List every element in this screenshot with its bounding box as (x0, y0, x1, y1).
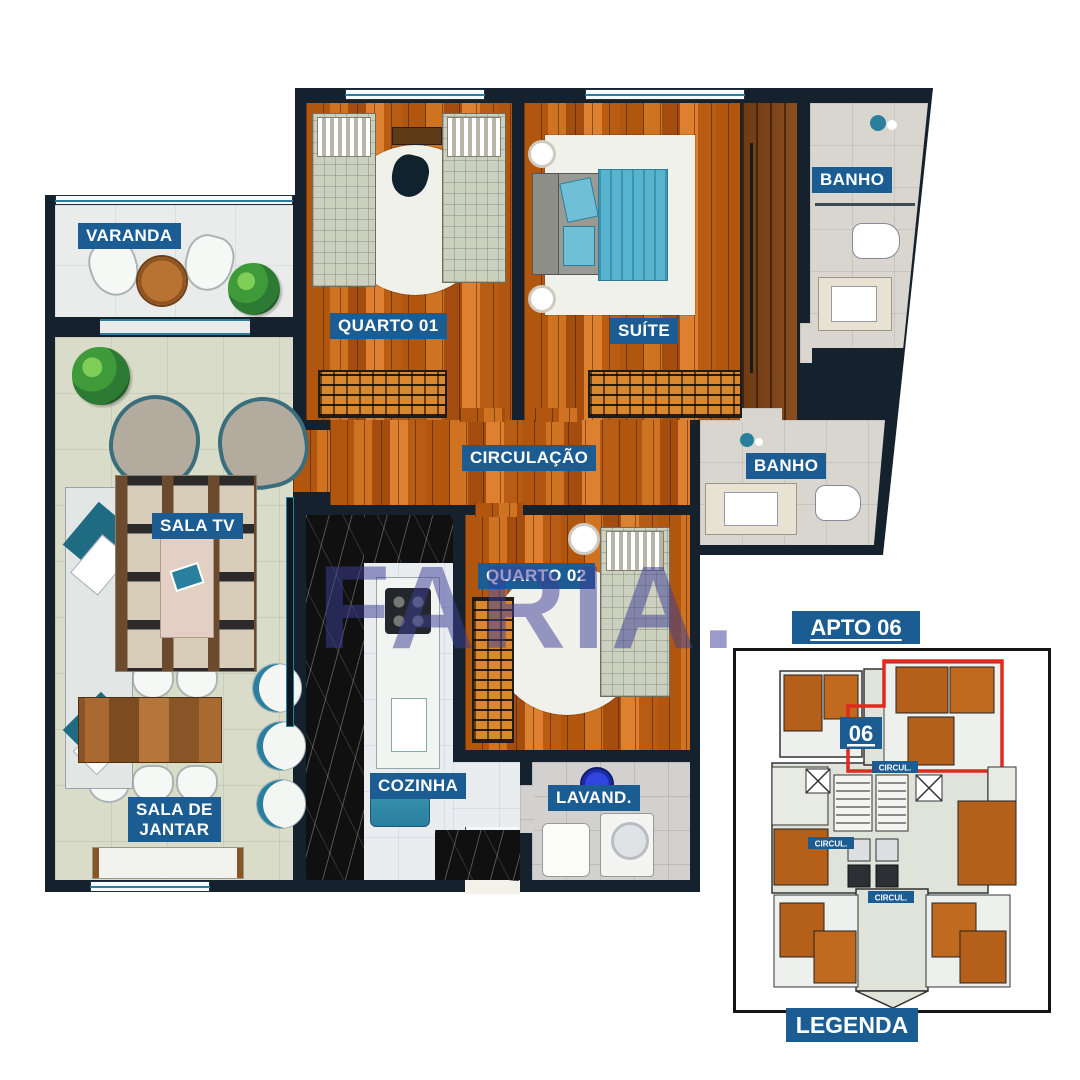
keyplan: CIRCUL. CIRCUL. CIRCUL. 06 (733, 648, 1051, 1013)
label-quarto01: QUARTO 01 (330, 313, 447, 339)
suite-closet (742, 103, 797, 420)
quarto01-bed-2 (442, 113, 506, 283)
quarto01-desk (392, 127, 442, 145)
watermark: FARIA. (318, 540, 741, 676)
label-sala-jantar: SALA DE JANTAR (128, 797, 221, 842)
suite-pillow-2 (563, 226, 595, 266)
banho2-sink (724, 492, 778, 526)
varanda-sliding-door (100, 319, 250, 335)
quarto01-pillow-1 (317, 117, 371, 157)
label-sala-jantar-line2: JANTAR (136, 820, 213, 840)
suite-headboard (532, 173, 560, 275)
kitchen-counter-bottom (435, 830, 520, 880)
varanda-glass-rail (55, 195, 293, 205)
banho1-shower-divider (815, 203, 915, 206)
banho1-toilet (852, 223, 900, 259)
quarto01-wardrobe (318, 370, 447, 418)
suite-mattress (558, 173, 602, 275)
window-suite (585, 89, 745, 100)
label-varanda: VARANDA (78, 223, 181, 249)
banho2-shower-head (740, 433, 754, 447)
door-gap-lavand (520, 785, 534, 833)
window-jantar (90, 881, 210, 892)
keyplan-unit-badge: 06 (849, 721, 873, 746)
keyplan-legend: LEGENDA (786, 1008, 918, 1042)
bar-stool-1 (252, 663, 302, 713)
banho2-toilet (815, 485, 861, 521)
door-gap-banho2 (740, 408, 782, 422)
kitchen-sink (391, 698, 427, 752)
suite-nightstand-2 (528, 285, 556, 313)
label-suite: SUÍTE (610, 318, 678, 344)
keyplan-drawing: CIRCUL. CIRCUL. CIRCUL. 06 (736, 651, 1048, 1010)
door-gap-quarto02 (475, 503, 523, 517)
tv-panel (286, 497, 294, 727)
keyplan-title: APTO 06 (792, 611, 920, 644)
bar-stool-2 (256, 721, 306, 771)
dining-table (78, 697, 222, 763)
suite-wardrobe (588, 370, 742, 418)
floor-plan-image: { "floorplan": { "rooms": { "varanda": {… (0, 0, 1080, 1080)
label-cozinha: COZINHA (370, 773, 466, 799)
label-banho2: BANHO (746, 453, 826, 479)
label-circulacao: CIRCULAÇÃO (462, 445, 596, 471)
varanda-plant (228, 263, 280, 315)
washing-machine (600, 813, 654, 877)
sala-rug (115, 475, 257, 672)
suite-nightstand-1 (528, 140, 556, 168)
sala-plant (72, 347, 130, 405)
suite-blanket (598, 169, 668, 281)
washer-door (611, 822, 649, 860)
keyplan-circul-1: CIRCUL. (879, 764, 911, 773)
label-lavanderia: LAVAND. (548, 785, 640, 811)
entrance-door-gap (465, 880, 520, 894)
keyplan-circul-3: CIRCUL. (875, 894, 907, 903)
banho1-vanity (818, 277, 892, 331)
label-sala-tv: SALA TV (152, 513, 243, 539)
suite-pillow-1 (559, 177, 599, 223)
keyplan-circul-2: CIRCUL. (815, 840, 847, 849)
bar-stool-3 (256, 779, 306, 829)
window-quarto01 (345, 89, 485, 100)
door-gap-suite (535, 408, 580, 422)
door-gap-quarto01 (460, 408, 505, 422)
closet-handle (750, 143, 753, 373)
sideboard (92, 847, 244, 879)
varanda-table (138, 257, 186, 305)
quarto01-bed-1 (312, 113, 376, 287)
banho2-vanity (705, 483, 797, 535)
banho1-shower-head (870, 115, 886, 131)
label-sala-jantar-line1: SALA DE (136, 800, 213, 820)
banho1-sink (831, 286, 877, 322)
label-banho1: BANHO (812, 167, 892, 193)
laundry-tank (542, 823, 590, 877)
door-gap-banho1 (800, 323, 812, 363)
quarto01-pillow-2 (447, 117, 501, 157)
